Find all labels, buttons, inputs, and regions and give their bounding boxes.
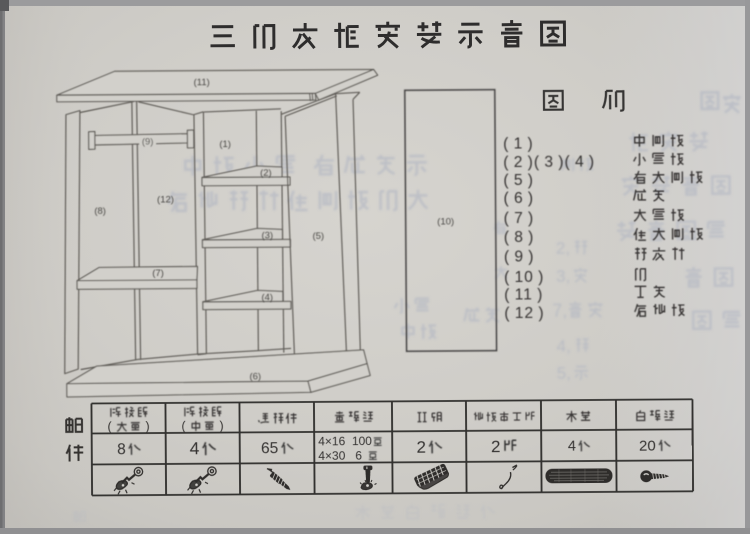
svg-text:8: 8 [117, 441, 126, 458]
svg-text:(7): (7) [152, 268, 164, 279]
svg-text:( 6 ): ( 6 ) [503, 190, 534, 207]
svg-text:(3): (3) [261, 230, 273, 241]
svg-text:( 12 ): ( 12 ) [504, 305, 544, 322]
svg-text:): ) [219, 419, 223, 433]
svg-text:4×30 6: 4×30 6 [318, 449, 362, 463]
svg-text:4×16 100: 4×16 100 [318, 434, 372, 448]
svg-text:( 10 ): ( 10 ) [504, 269, 544, 286]
svg-text:(9): (9) [142, 137, 154, 148]
svg-text:): ) [145, 420, 149, 434]
svg-text:( 9 ): ( 9 ) [504, 248, 535, 265]
svg-text:( 5 ): ( 5 ) [503, 172, 534, 189]
svg-text:( 11 ): ( 11 ) [504, 286, 543, 303]
svg-text:4: 4 [190, 438, 200, 458]
svg-text:5,: 5, [557, 364, 571, 383]
svg-text:4: 4 [568, 439, 576, 455]
svg-text:65: 65 [261, 440, 278, 457]
svg-text:(4): (4) [261, 292, 273, 303]
svg-text:(6): (6) [249, 371, 261, 382]
svg-text:(12): (12) [157, 194, 174, 205]
svg-text:2,: 2, [556, 239, 570, 258]
svg-text:( 7 ): ( 7 ) [504, 210, 535, 227]
svg-text:(10): (10) [437, 216, 454, 227]
svg-text:(2): (2) [260, 168, 272, 179]
svg-text:2: 2 [416, 438, 426, 457]
svg-text:20: 20 [639, 437, 656, 454]
svg-text:(11): (11) [194, 77, 210, 88]
svg-text:( 8 ): ( 8 ) [504, 229, 535, 246]
svg-text:(1): (1) [219, 139, 231, 150]
svg-text:2: 2 [491, 437, 501, 456]
svg-text:(5): (5) [312, 231, 324, 242]
svg-text:(8): (8) [94, 206, 106, 217]
svg-text:( 2 )( 3 )( 4 ): ( 2 )( 3 )( 4 ) [503, 153, 595, 171]
svg-text:7,: 7, [552, 301, 567, 321]
svg-text:( 1 ): ( 1 ) [503, 135, 534, 152]
svg-text:3,: 3, [556, 267, 570, 286]
svg-text:4,: 4, [556, 337, 570, 356]
